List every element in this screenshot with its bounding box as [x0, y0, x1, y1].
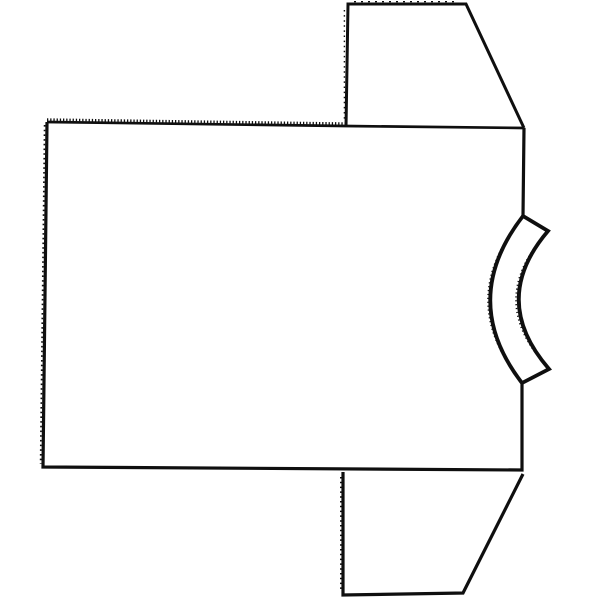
tshirt-line-drawing	[0, 0, 600, 600]
top-sleeve-outline	[346, 4, 524, 128]
shirt-body-outline	[43, 122, 524, 470]
bottom-sleeve-outline	[343, 472, 523, 595]
page-canvas	[0, 0, 600, 600]
shirt-body-top-edge	[47, 122, 524, 128]
